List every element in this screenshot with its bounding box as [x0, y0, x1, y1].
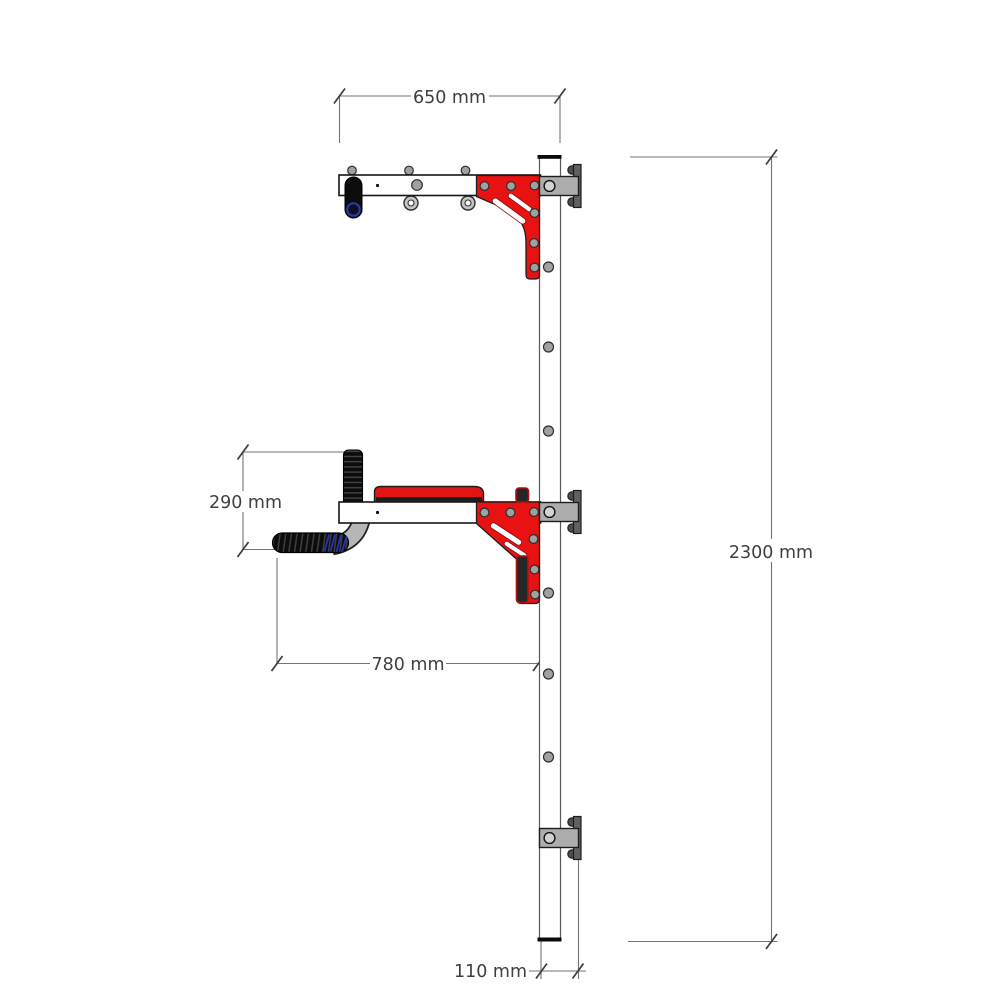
top-bolts [348, 166, 470, 175]
dimension-label-780: 780 mm [371, 655, 444, 675]
bracket-hole [544, 833, 555, 844]
cushion-pad [375, 487, 484, 502]
arm-hole [412, 180, 423, 191]
side-plate-bottom [517, 556, 529, 603]
bracket-hole [544, 507, 555, 518]
dimension-post-depth: 110 mm [454, 856, 586, 982]
technical-drawing: 650 mm 2300 mm 290 mm 780 mm 110 mm [0, 0, 1000, 1000]
side-plate-top [516, 488, 529, 502]
lower-curved-handle [273, 519, 362, 553]
dimension-label-110: 110 mm [454, 962, 527, 982]
dimension-label-290: 290 mm [209, 493, 282, 513]
mid-gusset-bracket [477, 488, 540, 604]
post-top-cap [538, 155, 562, 159]
top-gusset-bracket [477, 176, 540, 280]
post-body [540, 157, 561, 940]
grip-end-ring [347, 203, 360, 216]
hanging-eyelets [404, 196, 475, 210]
dimension-dip-arm-reach: 780 mm [272, 558, 545, 675]
wall-post [538, 155, 562, 942]
dimension-top-arm-width: 650 mm [334, 86, 566, 143]
drawing-canvas: 650 mm 2300 mm 290 mm 780 mm 110 mm [0, 0, 1000, 1000]
pull-up-arm-assembly [339, 166, 541, 279]
dimension-label-650: 650 mm [413, 88, 486, 108]
vertical-knurled-grip [344, 450, 363, 507]
arm-dot [376, 184, 379, 187]
dip-arm-assembly [273, 450, 541, 604]
bracket-hole [544, 181, 555, 192]
dimension-overall-height: 2300 mm [628, 150, 813, 950]
post-bottom-cap [538, 938, 562, 942]
arm-dot [376, 511, 379, 514]
dimension-label-2300: 2300 mm [729, 543, 813, 563]
pull-up-grip [345, 177, 362, 218]
